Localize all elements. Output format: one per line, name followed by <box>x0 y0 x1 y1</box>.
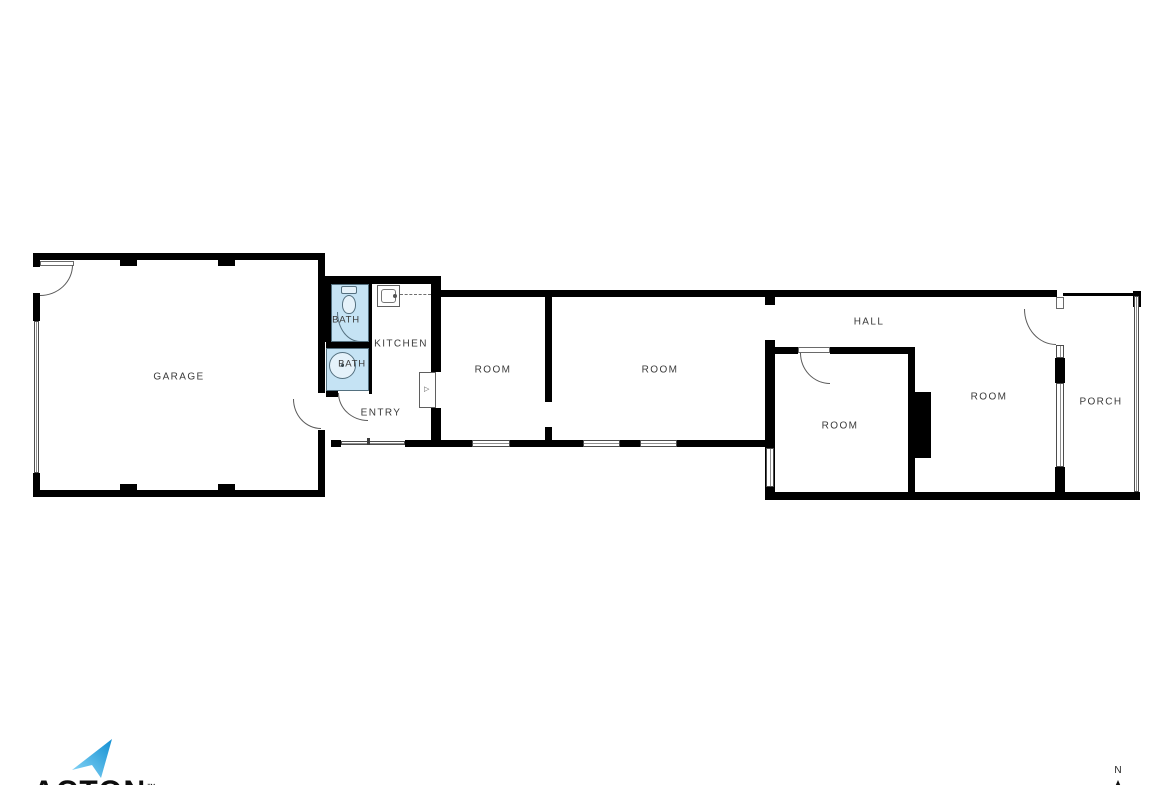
rooms-wall-bottom-seg <box>677 440 775 447</box>
room1-label: ROOM <box>475 365 512 376</box>
porch-door-arc <box>1024 309 1056 345</box>
entry-front-door <box>341 441 405 445</box>
kitchen-counter-line <box>400 294 431 295</box>
entry-door-tick <box>367 438 370 445</box>
kitchen-block-wall-top <box>318 276 441 284</box>
north-arrow-icon <box>1111 780 1125 785</box>
garage-entry-door-arc <box>293 399 321 429</box>
garage-wall-right-upper <box>318 253 325 393</box>
garage-wall-tab <box>120 260 137 266</box>
north-label: N <box>1110 765 1126 776</box>
hall-wall-top <box>775 290 1057 297</box>
entry-label: ENTRY <box>361 408 402 419</box>
room4-label: ROOM <box>971 392 1008 403</box>
room1-room2-divider-stub <box>545 427 552 440</box>
bath1-label: BATH <box>332 315 360 326</box>
garage-label: GARAGE <box>153 372 204 383</box>
entry-wall-bottom-right <box>405 440 437 447</box>
hall-label: HALL <box>854 317 885 328</box>
bath-wall-bottom-stub <box>326 391 338 397</box>
toilet-icon <box>341 286 357 294</box>
entry-wall-bottom-left <box>331 440 341 447</box>
garage-wall-left-top <box>33 253 40 267</box>
logo-wordmark: ACTON™ <box>33 777 157 785</box>
bath-kitchen-wall <box>369 284 372 394</box>
room2-label: ROOM <box>642 365 679 376</box>
hall-passage-stub <box>765 296 775 305</box>
room3-door-arc <box>800 353 830 384</box>
porch-label: PORCH <box>1079 397 1122 408</box>
kitchen-room1-wall-upper <box>431 284 441 372</box>
kitchen-room1-wall-lower <box>431 408 441 440</box>
water-heater-marker-icon: ▷ <box>424 386 429 393</box>
garage-wall-tab <box>218 484 235 490</box>
rooms-wall-top <box>437 290 775 297</box>
sink-faucet-icon <box>393 294 397 298</box>
room3-label: ROOM <box>822 421 859 432</box>
right-section-wall-bottom <box>768 492 1140 500</box>
room4-porch-window <box>1056 383 1064 467</box>
hall-room3-wall-seg <box>775 347 798 354</box>
garage-wall-left-mid <box>33 293 40 321</box>
garage-side-door-arc <box>40 265 73 296</box>
garage-wall-right-lower <box>318 430 325 497</box>
rooms-wall-bottom-seg <box>510 440 583 447</box>
room3-left-window <box>766 448 774 487</box>
kitchen-label: KITCHEN <box>374 339 428 350</box>
room4-porch-wall-seg <box>1055 358 1065 383</box>
rooms-wall-bottom-seg <box>437 440 472 447</box>
room4-porch-wall-seg <box>1055 467 1065 492</box>
room1-window <box>472 440 510 447</box>
hall-room3-wall-seg <box>830 347 915 354</box>
garage-wall-tab <box>218 260 235 266</box>
garage-wall-tab <box>120 484 137 490</box>
floorplan-canvas: GARAGE BATH BATH KITCHEN ▷ ENTRY ROOM RO… <box>0 0 1170 785</box>
porch-door-leaf <box>1056 297 1064 309</box>
room4-porch-window <box>1056 345 1064 358</box>
porch-screen-wall <box>1134 296 1139 492</box>
chimney-block <box>910 392 931 458</box>
garage-window-left <box>34 321 39 473</box>
room2-window <box>640 440 677 447</box>
rooms-wall-bottom-seg <box>620 440 640 447</box>
garage-wall-top <box>33 253 325 260</box>
room2-window <box>583 440 620 447</box>
bath2-label: BATH <box>338 359 366 370</box>
garage-wall-bottom <box>33 490 325 497</box>
room1-room2-divider <box>545 297 552 402</box>
porch-wall-top <box>1063 293 1135 296</box>
